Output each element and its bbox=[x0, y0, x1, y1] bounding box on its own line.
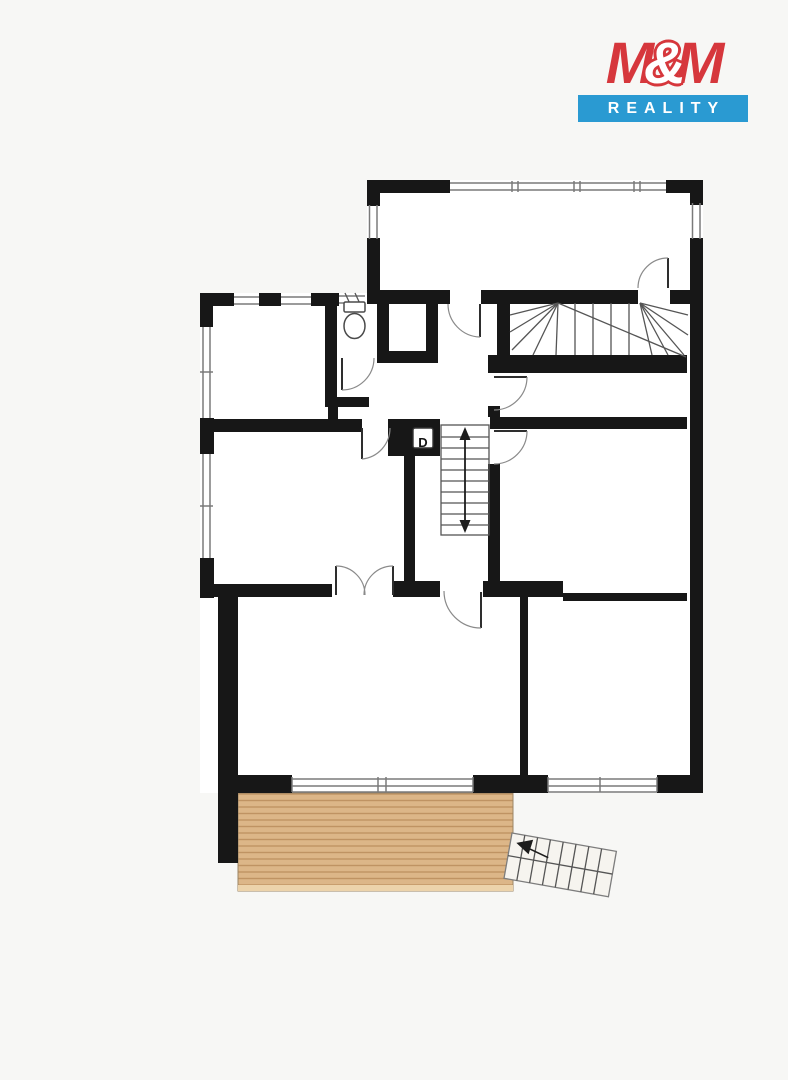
exterior-staircase bbox=[504, 833, 616, 897]
window-bottom-right-room bbox=[548, 776, 657, 792]
wood-deck-terrace bbox=[238, 793, 513, 891]
brand-ampersand: & bbox=[643, 31, 683, 96]
deck-edge bbox=[238, 885, 513, 891]
window-terrace-slider bbox=[292, 776, 473, 792]
toilet-icon bbox=[344, 302, 365, 339]
duct-shaft-box: D bbox=[388, 419, 440, 456]
floor-plan: D bbox=[0, 0, 788, 1080]
room-interiors bbox=[200, 180, 703, 793]
duct-label: D bbox=[418, 435, 427, 450]
